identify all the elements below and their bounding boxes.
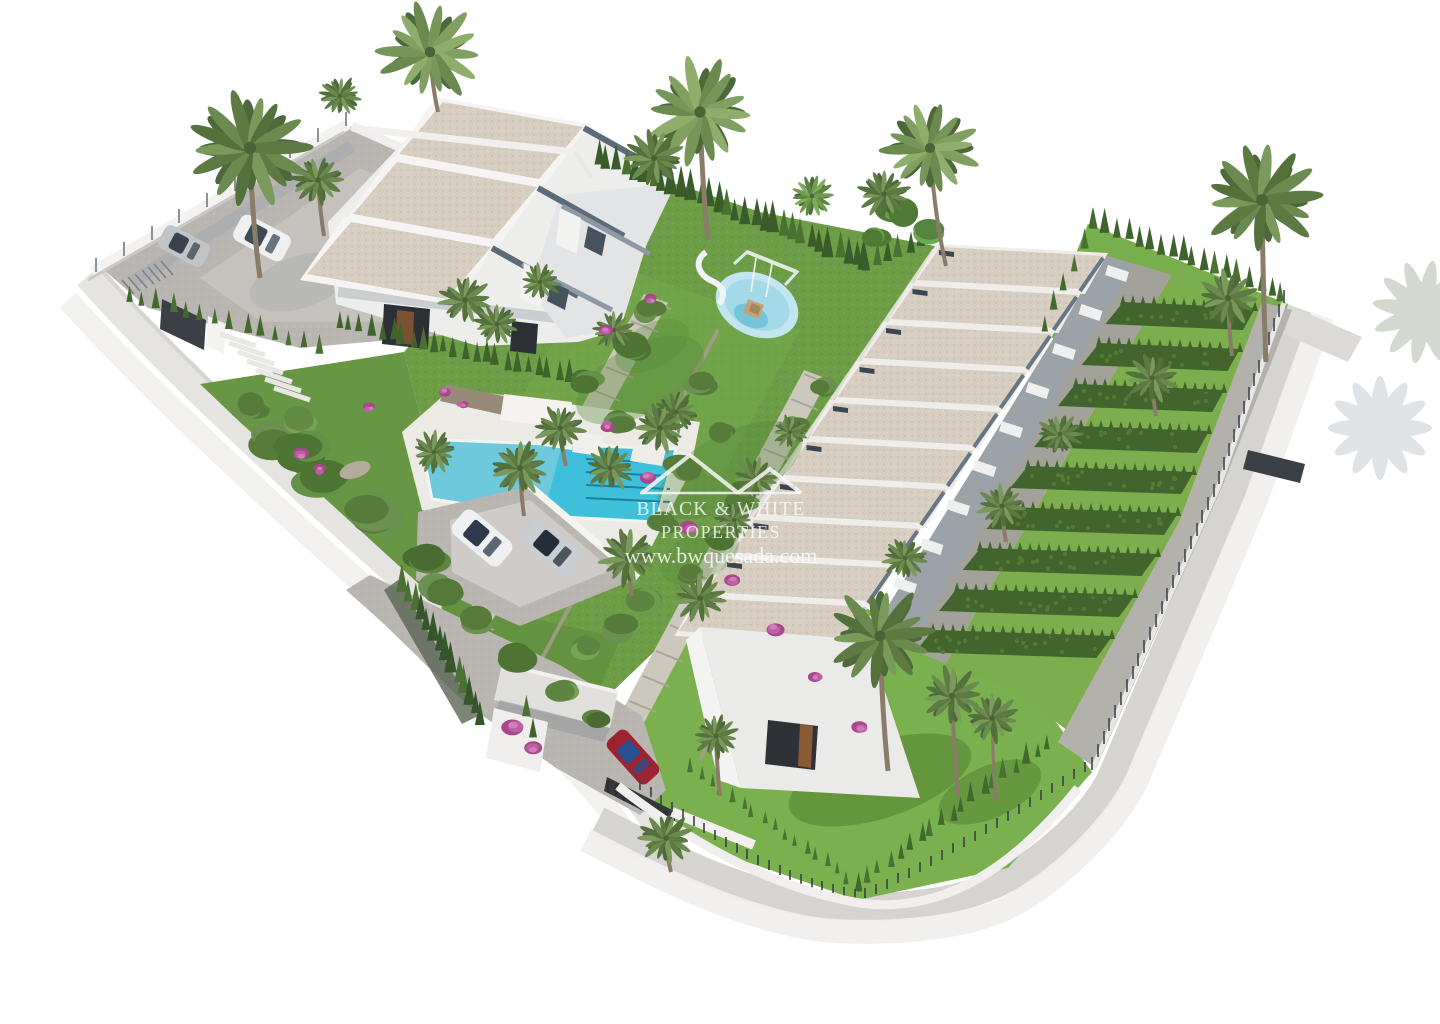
svg-text:PROPERTIES: PROPERTIES [661, 522, 781, 542]
svg-text:BLACK & WHITE: BLACK & WHITE [636, 499, 805, 520]
svg-text:www.bwquesada.com: www.bwquesada.com [625, 543, 818, 568]
